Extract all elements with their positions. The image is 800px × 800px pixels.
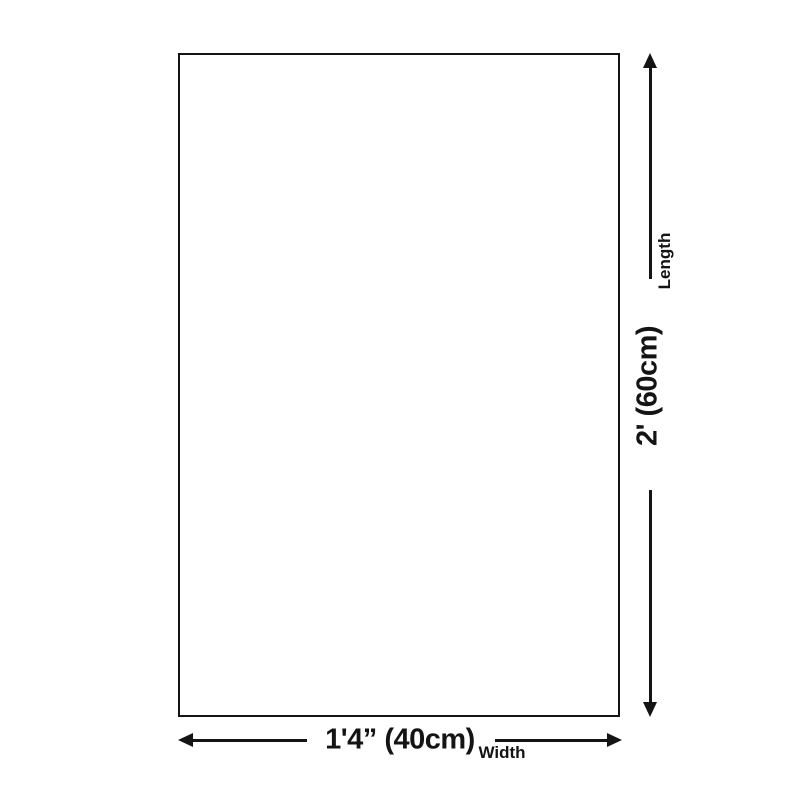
- length-dimension-line-upper: [649, 66, 652, 279]
- length-label: Length: [655, 233, 675, 290]
- width-value: 1'4” (40cm): [325, 724, 475, 757]
- length-dimension-line-lower: [649, 490, 652, 703]
- product-outline-rectangle: [178, 53, 620, 717]
- width-dimension-line-right: [495, 739, 608, 742]
- length-value: 2' (60cm): [632, 326, 665, 446]
- arrow-right-icon: [607, 733, 622, 747]
- arrow-down-icon: [643, 702, 657, 717]
- size-diagram: Length 2' (60cm) 1'4” (40cm) Width: [0, 0, 800, 800]
- width-dimension-line-left: [192, 739, 307, 742]
- arrow-left-icon: [178, 733, 193, 747]
- width-label: Width: [478, 743, 525, 763]
